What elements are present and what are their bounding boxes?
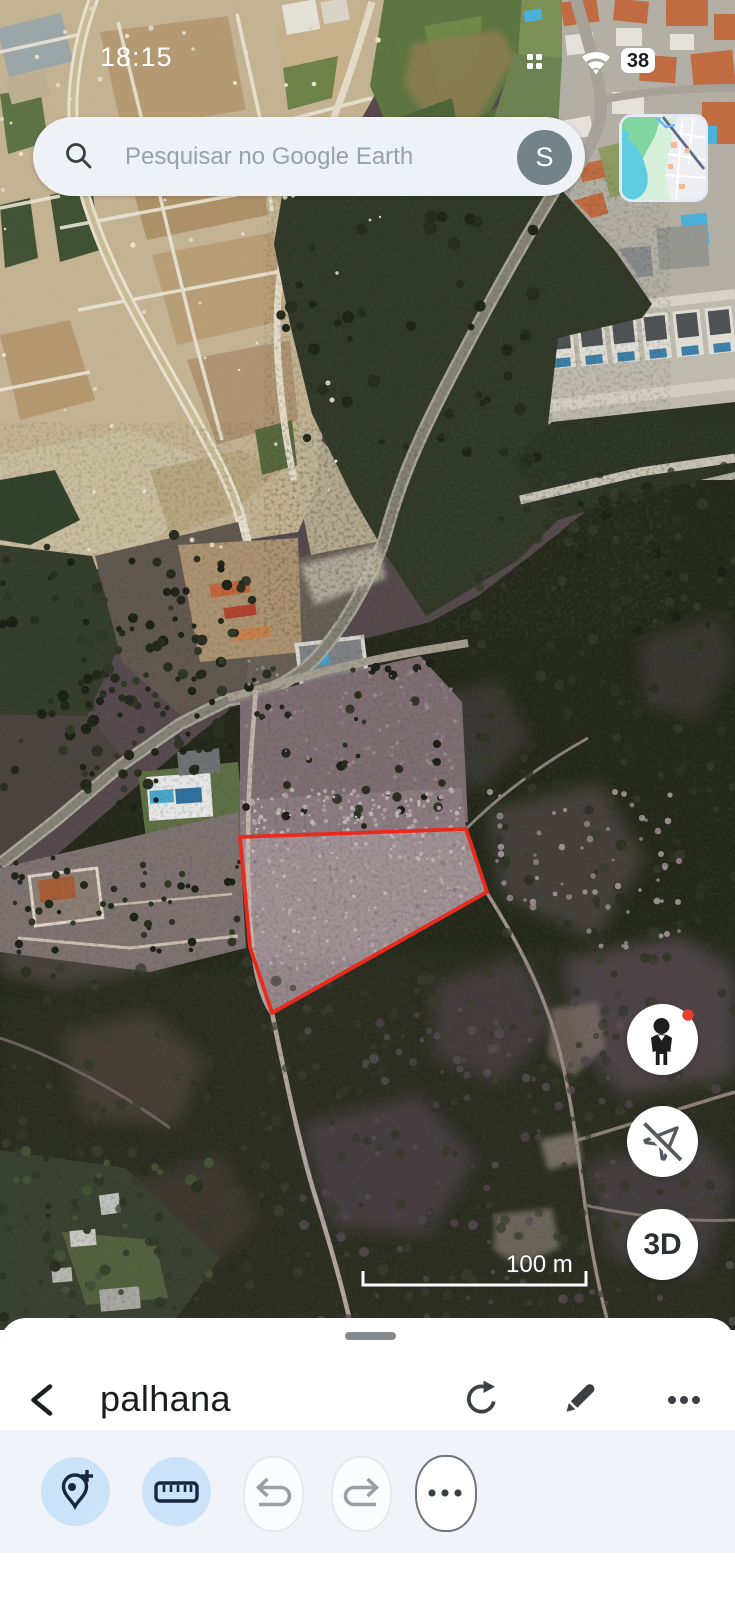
svg-text:38: 38 bbox=[627, 50, 649, 72]
